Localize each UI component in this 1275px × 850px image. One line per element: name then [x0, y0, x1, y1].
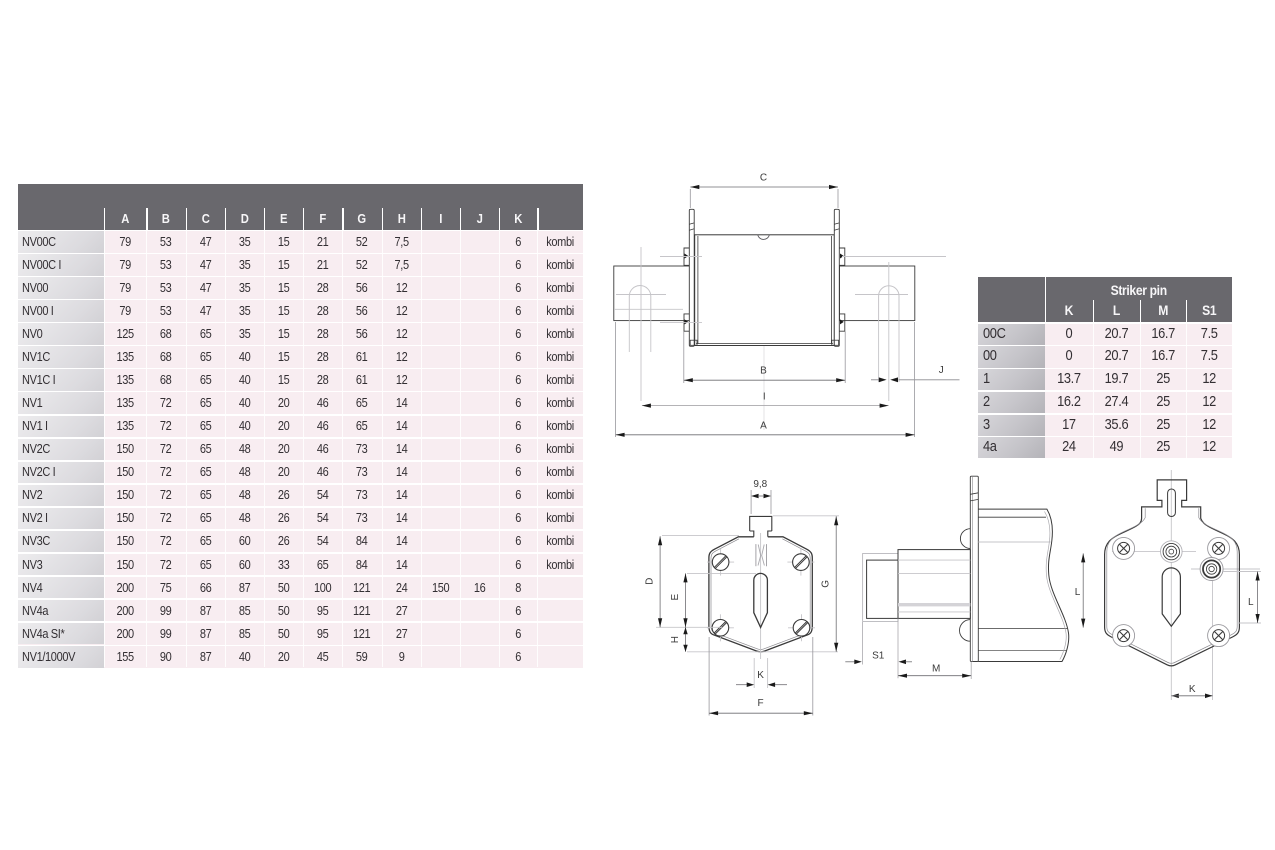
svg-text:E: E: [670, 594, 681, 601]
svg-text:J: J: [939, 365, 944, 376]
svg-text:S1: S1: [872, 650, 885, 661]
svg-text:M: M: [932, 663, 940, 674]
svg-text:K: K: [1189, 684, 1196, 695]
svg-text:D: D: [644, 578, 655, 585]
svg-text:L: L: [1075, 587, 1081, 598]
svg-text:F: F: [758, 698, 764, 709]
svg-text:B: B: [760, 366, 767, 377]
svg-text:I: I: [763, 391, 766, 402]
svg-text:9,8: 9,8: [753, 479, 767, 490]
svg-text:A: A: [760, 420, 767, 431]
svg-text:L: L: [1248, 597, 1254, 608]
svg-text:H: H: [670, 636, 681, 643]
svg-text:K: K: [757, 670, 764, 681]
svg-text:G: G: [820, 580, 831, 588]
svg-text:C: C: [760, 173, 767, 184]
